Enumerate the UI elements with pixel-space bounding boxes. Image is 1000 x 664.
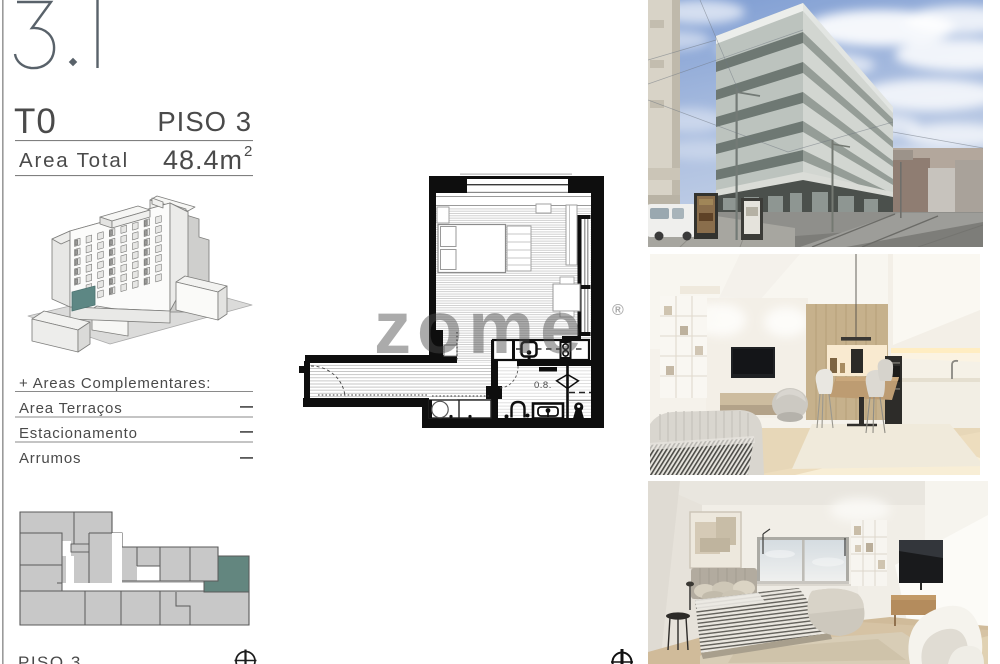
svg-text:Estacionamento: Estacionamento — [19, 425, 138, 442]
svg-text:+ Areas Complementares:: + Areas Complementares: — [19, 375, 211, 392]
svg-text:48.4m: 48.4m — [163, 145, 243, 175]
svg-text:zome: zome — [374, 286, 587, 369]
svg-text:Area Total: Area Total — [19, 149, 129, 172]
svg-text:Arrumos: Arrumos — [19, 450, 81, 467]
svg-text:2: 2 — [244, 143, 252, 160]
svg-text:0.8.: 0.8. — [534, 380, 552, 391]
svg-text:Area Terraços: Area Terraços — [19, 400, 123, 417]
svg-text:®: ® — [612, 302, 624, 319]
svg-text:T0: T0 — [14, 102, 57, 141]
svg-text:PISO 3: PISO 3 — [157, 106, 252, 137]
svg-text:PISO 3: PISO 3 — [18, 653, 82, 664]
